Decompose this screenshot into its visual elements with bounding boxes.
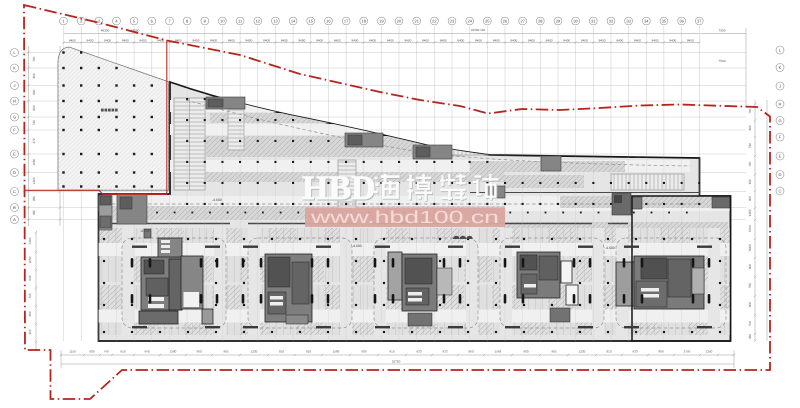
svg-text:470: 470 [32,138,36,143]
svg-text:450: 450 [748,179,752,184]
svg-text:19: 19 [379,19,384,24]
svg-text:800: 800 [748,125,752,130]
svg-text:27: 27 [520,19,525,24]
svg-text:1050: 1050 [32,158,36,165]
svg-text:1150: 1150 [69,349,76,353]
svg-text:760: 760 [28,293,32,298]
svg-text:910: 910 [389,349,394,353]
svg-text:8400: 8400 [210,38,217,42]
svg-text:1050: 1050 [28,256,32,263]
svg-text:810: 810 [279,349,284,353]
svg-text:740: 740 [103,349,108,353]
svg-text:450: 450 [32,210,36,215]
svg-text:8400: 8400 [546,38,553,42]
svg-text:860: 860 [658,349,663,353]
svg-text:8400: 8400 [652,38,659,42]
svg-text:21: 21 [414,19,419,24]
svg-text:D: D [779,172,782,177]
svg-text:HBD: HBD [302,170,376,207]
svg-text:-4.600: -4.600 [352,244,362,248]
svg-text:8400: 8400 [140,38,147,42]
svg-text:450: 450 [28,311,32,316]
svg-text:8400: 8400 [510,38,517,42]
svg-text:8400: 8400 [528,38,535,42]
svg-text:633: 633 [416,349,421,353]
svg-text:H: H [13,99,16,104]
svg-text:933: 933 [442,349,447,353]
svg-text:8400: 8400 [599,38,606,42]
svg-text:E: E [13,152,16,157]
svg-text:1220: 1220 [579,349,586,353]
svg-text:810: 810 [306,349,311,353]
svg-text:800: 800 [32,105,36,110]
svg-text:1300: 1300 [28,237,32,244]
svg-text:8400: 8400 [69,38,76,42]
svg-text:32750: 32750 [392,360,401,364]
svg-text:E: E [779,154,782,159]
svg-text:3450: 3450 [748,209,752,216]
svg-text:8400: 8400 [475,38,482,42]
svg-text:600: 600 [89,349,94,353]
svg-text:8400: 8400 [104,38,111,42]
svg-text:8400: 8400 [281,38,288,42]
svg-text:C: C [13,189,16,194]
svg-text:13: 13 [273,19,278,24]
svg-text:17: 17 [344,19,349,24]
svg-text:34: 34 [644,19,649,24]
svg-text:J: J [779,84,781,89]
svg-text:8400: 8400 [316,38,323,42]
svg-text:C: C [779,189,782,194]
svg-text:860: 860 [468,349,473,353]
svg-text:950: 950 [32,196,36,201]
svg-text:A: A [13,217,16,222]
svg-text:G: G [778,118,781,123]
svg-text:20: 20 [397,19,402,24]
svg-text:1220: 1220 [251,349,258,353]
svg-text:8400: 8400 [687,38,694,42]
svg-text:3750: 3750 [684,349,691,353]
svg-text:37: 37 [697,19,702,24]
svg-text:800: 800 [32,89,36,94]
svg-text:8400: 8400 [440,38,447,42]
svg-text:1250: 1250 [706,349,713,353]
svg-text:8400: 8400 [228,38,235,42]
svg-text:B: B [13,205,16,210]
svg-text:K: K [779,65,782,70]
svg-text:25: 25 [485,19,490,24]
svg-text:1568: 1568 [495,349,502,353]
svg-text:G: G [13,115,16,120]
svg-text:616: 616 [120,349,125,353]
svg-text:700: 700 [748,321,752,326]
svg-text:12: 12 [256,19,261,24]
svg-text:750: 750 [748,283,752,288]
svg-text:K: K [13,66,16,71]
svg-text:940: 940 [144,349,149,353]
svg-text:1300: 1300 [32,177,36,184]
svg-text:8400: 8400 [122,38,129,42]
svg-text:8400: 8400 [387,38,394,42]
svg-text:35: 35 [662,19,667,24]
svg-text:-4.600: -4.600 [605,246,615,250]
svg-text:24300 18#: 24300 18# [471,28,486,32]
svg-text:10: 10 [220,19,225,24]
svg-text:900: 900 [196,349,201,353]
svg-text:48300: 48300 [101,29,110,33]
svg-text:800: 800 [748,302,752,307]
svg-text:26: 26 [503,19,508,24]
svg-text:J: J [14,83,16,88]
svg-text:1580: 1580 [333,349,340,353]
svg-text:8400: 8400 [634,38,641,42]
svg-text:8400: 8400 [581,38,588,42]
svg-text:33: 33 [626,19,631,24]
svg-text:700: 700 [748,161,752,166]
svg-text:8400: 8400 [404,38,411,42]
svg-text:6700: 6700 [748,225,752,232]
svg-text:16: 16 [326,19,331,24]
svg-text:-4.600: -4.600 [140,229,150,233]
svg-text:24: 24 [467,19,472,24]
svg-text:900: 900 [748,264,752,269]
svg-text:7500: 7500 [719,29,726,33]
svg-text:29: 29 [556,19,561,24]
svg-text:905: 905 [223,349,228,353]
svg-text:8400: 8400 [669,38,676,42]
svg-text:450: 450 [748,334,752,339]
svg-text:7500: 7500 [719,59,726,63]
svg-text:8400: 8400 [263,38,270,42]
svg-text:900: 900 [361,349,366,353]
svg-text:5000: 5000 [748,244,752,251]
svg-text:800: 800 [32,73,36,78]
svg-text:36: 36 [679,19,684,24]
svg-text:900: 900 [523,349,528,353]
svg-text:760: 760 [32,120,36,125]
svg-text:700: 700 [748,108,752,113]
svg-text:8400: 8400 [193,38,200,42]
svg-text:23: 23 [450,19,455,24]
svg-text:8400: 8400 [616,38,623,42]
svg-text:8400: 8400 [563,38,570,42]
svg-text:H: H [779,102,782,107]
svg-text:14: 14 [291,19,296,24]
svg-text:810: 810 [606,349,611,353]
svg-text:8400: 8400 [87,38,94,42]
svg-text:8400: 8400 [351,38,358,42]
svg-text:18: 18 [361,19,366,24]
svg-text:8400: 8400 [334,38,341,42]
svg-text:300: 300 [28,329,32,334]
svg-text:905: 905 [551,349,556,353]
svg-text:D: D [13,170,16,175]
svg-text:630: 630 [28,275,32,280]
svg-text:750: 750 [748,143,752,148]
svg-text:28: 28 [538,19,543,24]
svg-text:933: 933 [632,349,637,353]
svg-text:900: 900 [748,196,752,201]
svg-text:15: 15 [308,19,313,24]
svg-text:30: 30 [573,19,578,24]
svg-text:8400: 8400 [245,38,252,42]
svg-text:8400: 8400 [422,38,429,42]
svg-text:-4.600: -4.600 [212,198,222,202]
svg-text:31: 31 [591,19,596,24]
svg-text:22: 22 [432,19,437,24]
svg-text:8400: 8400 [298,38,305,42]
svg-text:32: 32 [609,19,614,24]
svg-text:www.hbd100.cn: www.hbd100.cn [309,207,499,227]
svg-text:700: 700 [32,56,36,61]
svg-text:8400: 8400 [457,38,464,42]
svg-text:8400: 8400 [369,38,376,42]
svg-text:8400: 8400 [493,38,500,42]
svg-text:1580: 1580 [170,349,177,353]
